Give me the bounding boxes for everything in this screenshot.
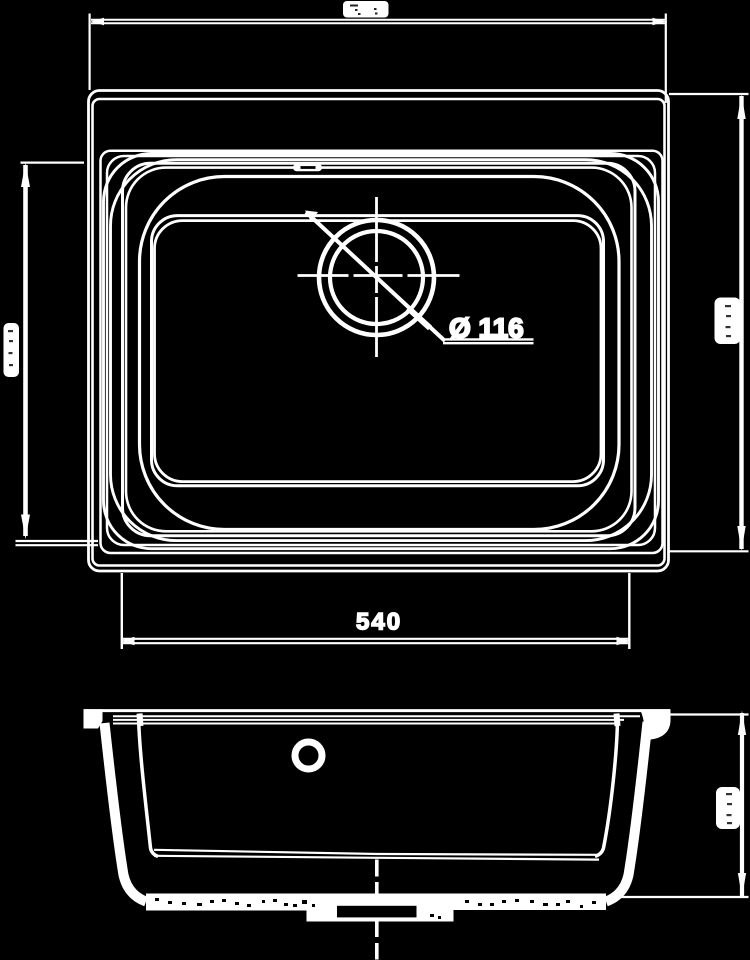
svg-text:540: 540: [356, 609, 402, 636]
svg-text:Ø 116: Ø 116: [449, 313, 524, 344]
